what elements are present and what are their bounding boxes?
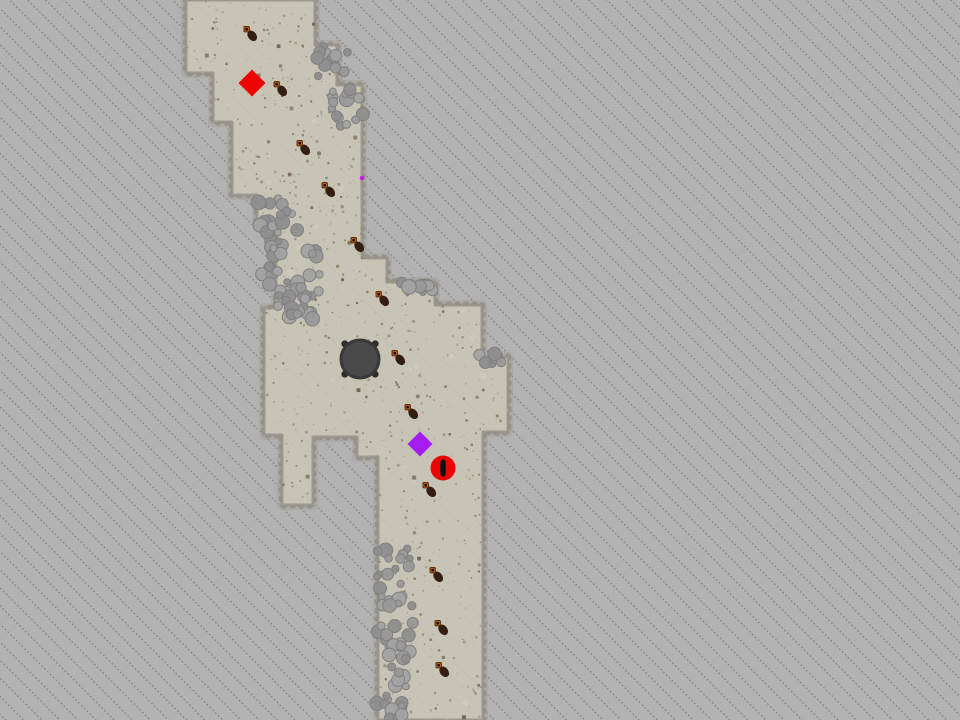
- alert-marker-icon[interactable]: [431, 456, 456, 481]
- rock-boulder: [385, 555, 392, 562]
- structure-body: [341, 340, 379, 378]
- rock-boulder: [275, 292, 283, 300]
- rock-boulder: [394, 668, 403, 677]
- rock-boulder: [373, 547, 382, 556]
- rock-boulder: [388, 620, 401, 633]
- rock-boulder: [328, 97, 337, 106]
- rock-boulder: [344, 48, 352, 56]
- creature-head: [376, 291, 382, 297]
- rock-boulder: [291, 224, 304, 237]
- creature-head: [435, 620, 441, 626]
- rock-boulder: [407, 617, 418, 628]
- rock-boulder: [311, 52, 324, 65]
- rock-boulder: [377, 622, 385, 630]
- creature-head: [423, 482, 429, 488]
- creature-head: [436, 662, 442, 668]
- rock-boulder: [330, 63, 340, 73]
- rock-boulder: [383, 692, 390, 699]
- rock-boulder: [352, 116, 360, 124]
- creature-head: [430, 567, 436, 573]
- rock-boulder: [308, 250, 316, 258]
- rock-boulder: [314, 287, 323, 296]
- rock-boulder: [403, 561, 414, 572]
- rock-boulder: [251, 195, 266, 210]
- rock-boulder: [401, 280, 416, 295]
- creature-head: [322, 182, 328, 188]
- creature-head: [274, 81, 280, 87]
- rock-boulder: [397, 580, 404, 587]
- map-canvas[interactable]: [0, 0, 960, 720]
- rock-boulder: [273, 267, 282, 276]
- rock-boulder: [264, 262, 273, 271]
- rock-boulder: [382, 648, 396, 662]
- rock-boulder: [396, 554, 406, 564]
- rock-boulder: [343, 120, 351, 128]
- rock-boulder: [396, 641, 406, 651]
- rock-boulder: [344, 83, 356, 95]
- creature-head: [244, 26, 250, 32]
- rock-boulder: [488, 347, 501, 360]
- rock-boulder: [374, 573, 381, 580]
- exclamation-bar: [440, 460, 445, 477]
- rock-boulder: [330, 49, 342, 61]
- rock-boulder: [284, 279, 291, 286]
- rock-boulder: [401, 655, 410, 664]
- rock-boulder: [300, 294, 309, 303]
- rock-boulder: [314, 72, 321, 79]
- creature-head: [351, 237, 357, 243]
- rock-boulder: [395, 709, 408, 720]
- rock-boulder: [383, 599, 397, 613]
- rock-boulder: [331, 111, 341, 121]
- rock-boulder: [316, 271, 324, 279]
- rock-boulder: [274, 302, 283, 311]
- rock-boulder: [305, 311, 320, 326]
- small-magenta-dot-icon[interactable]: [360, 176, 365, 181]
- rock-boulder: [354, 93, 364, 103]
- rock-boulder: [408, 602, 416, 610]
- rock-boulder: [303, 269, 316, 282]
- creature-head: [392, 350, 398, 356]
- rock-boulder: [276, 211, 284, 219]
- rock-boulder: [270, 245, 277, 252]
- dark-round-structure[interactable]: [341, 340, 379, 378]
- rock-boulder: [263, 277, 277, 291]
- rock-boulder: [388, 663, 396, 671]
- creature-head: [297, 140, 303, 146]
- rock-boulder: [329, 88, 336, 95]
- game-viewport[interactable]: [0, 0, 960, 720]
- creature-head: [405, 404, 411, 410]
- rock-boulder: [296, 283, 306, 293]
- rock-boulder: [293, 310, 301, 318]
- rock-boulder: [392, 565, 399, 572]
